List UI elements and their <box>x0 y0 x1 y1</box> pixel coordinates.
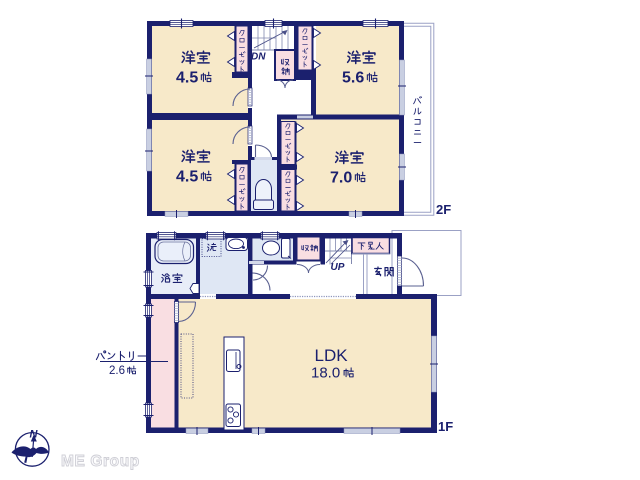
svg-text:UP: UP <box>331 262 345 273</box>
svg-text:LDK: LDK <box>315 346 349 365</box>
svg-text:ME Group: ME Group <box>61 453 140 470</box>
svg-text:4.5: 4.5 <box>176 70 198 87</box>
svg-text:5.6: 5.6 <box>342 70 364 87</box>
svg-text:DN: DN <box>251 52 266 63</box>
svg-text:1F: 1F <box>438 419 453 434</box>
svg-text:2F: 2F <box>436 202 451 217</box>
svg-text:18.0: 18.0 <box>311 365 340 382</box>
svg-text:7.0: 7.0 <box>330 170 352 187</box>
svg-text:2.6: 2.6 <box>109 365 125 377</box>
svg-text:4.5: 4.5 <box>176 169 198 186</box>
